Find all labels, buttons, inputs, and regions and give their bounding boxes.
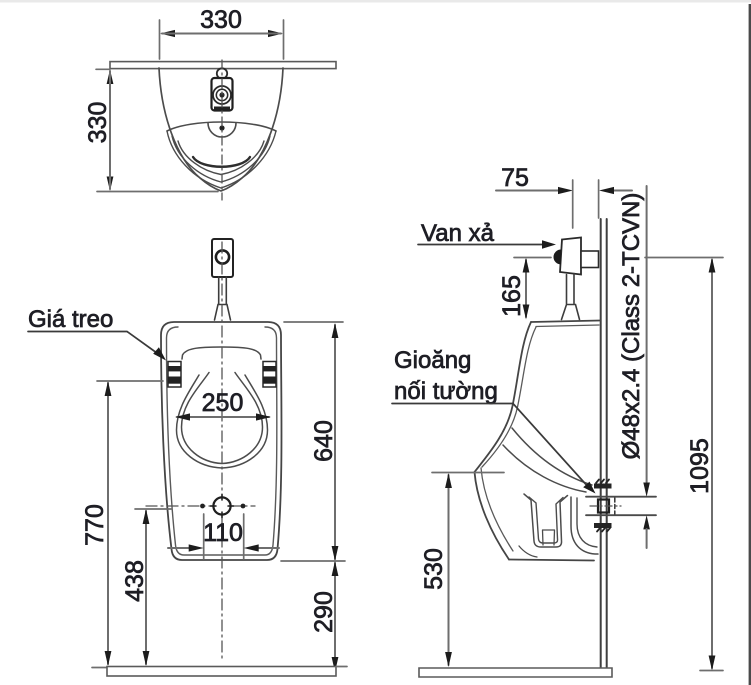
svg-text:640: 640: [310, 420, 338, 462]
svg-text:770: 770: [81, 504, 109, 546]
svg-text:Van xả: Van xả: [421, 220, 495, 247]
svg-text:250: 250: [202, 389, 244, 417]
svg-text:438: 438: [121, 560, 149, 602]
svg-text:165: 165: [498, 275, 526, 317]
svg-text:290: 290: [310, 591, 338, 633]
svg-text:110: 110: [203, 519, 243, 547]
svg-text:330: 330: [200, 6, 242, 34]
svg-text:530: 530: [420, 548, 448, 590]
svg-text:75: 75: [501, 164, 529, 192]
svg-text:330: 330: [84, 102, 112, 144]
svg-text:Ø48x2.4 (Class 2-TCVN): Ø48x2.4 (Class 2-TCVN): [618, 193, 645, 460]
svg-text:nối tường: nối tường: [394, 378, 498, 405]
svg-text:1095: 1095: [686, 438, 714, 494]
svg-text:Giá treo: Giá treo: [28, 306, 113, 333]
svg-text:Gioăng: Gioăng: [394, 347, 471, 374]
